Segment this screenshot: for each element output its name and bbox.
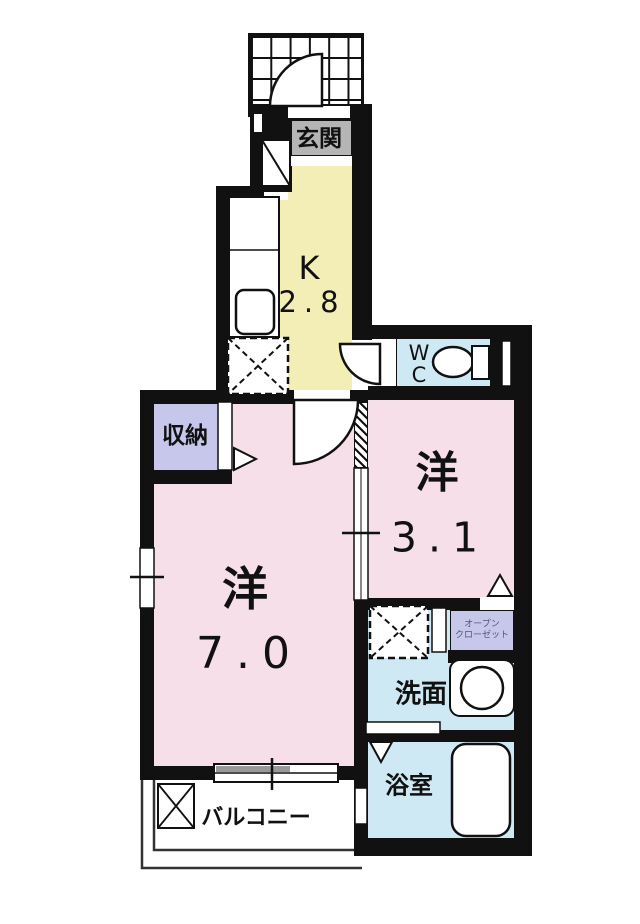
- western3-label: 洋: [416, 451, 459, 496]
- wc-label-w: W: [409, 342, 430, 364]
- kitchen-size: 2.8: [278, 287, 345, 317]
- labels-layer: 玄関 K 2.8 W C 収納 洋 7.0 洋 3.1 オープン クローゼット …: [0, 0, 640, 924]
- western3-size: 3.1: [391, 516, 489, 559]
- kitchen-label: K: [299, 252, 320, 286]
- bathroom-label: 浴室: [385, 773, 433, 798]
- washroom-label: 洗面: [395, 681, 447, 708]
- wc-label-c: C: [412, 364, 427, 386]
- western7-label: 洋: [222, 565, 268, 613]
- open-closet-label-line2: クローゼット: [455, 631, 509, 640]
- balcony-label: バルコニー: [201, 806, 311, 829]
- floor-plan: 玄関 K 2.8 W C 収納 洋 7.0 洋 3.1 オープン クローゼット …: [0, 0, 640, 924]
- western7-size: 7.0: [196, 631, 302, 677]
- storage-label: 収納: [162, 424, 208, 448]
- genkan-label: 玄関: [296, 127, 342, 151]
- open-closet-label-line1: オープン: [464, 620, 499, 629]
